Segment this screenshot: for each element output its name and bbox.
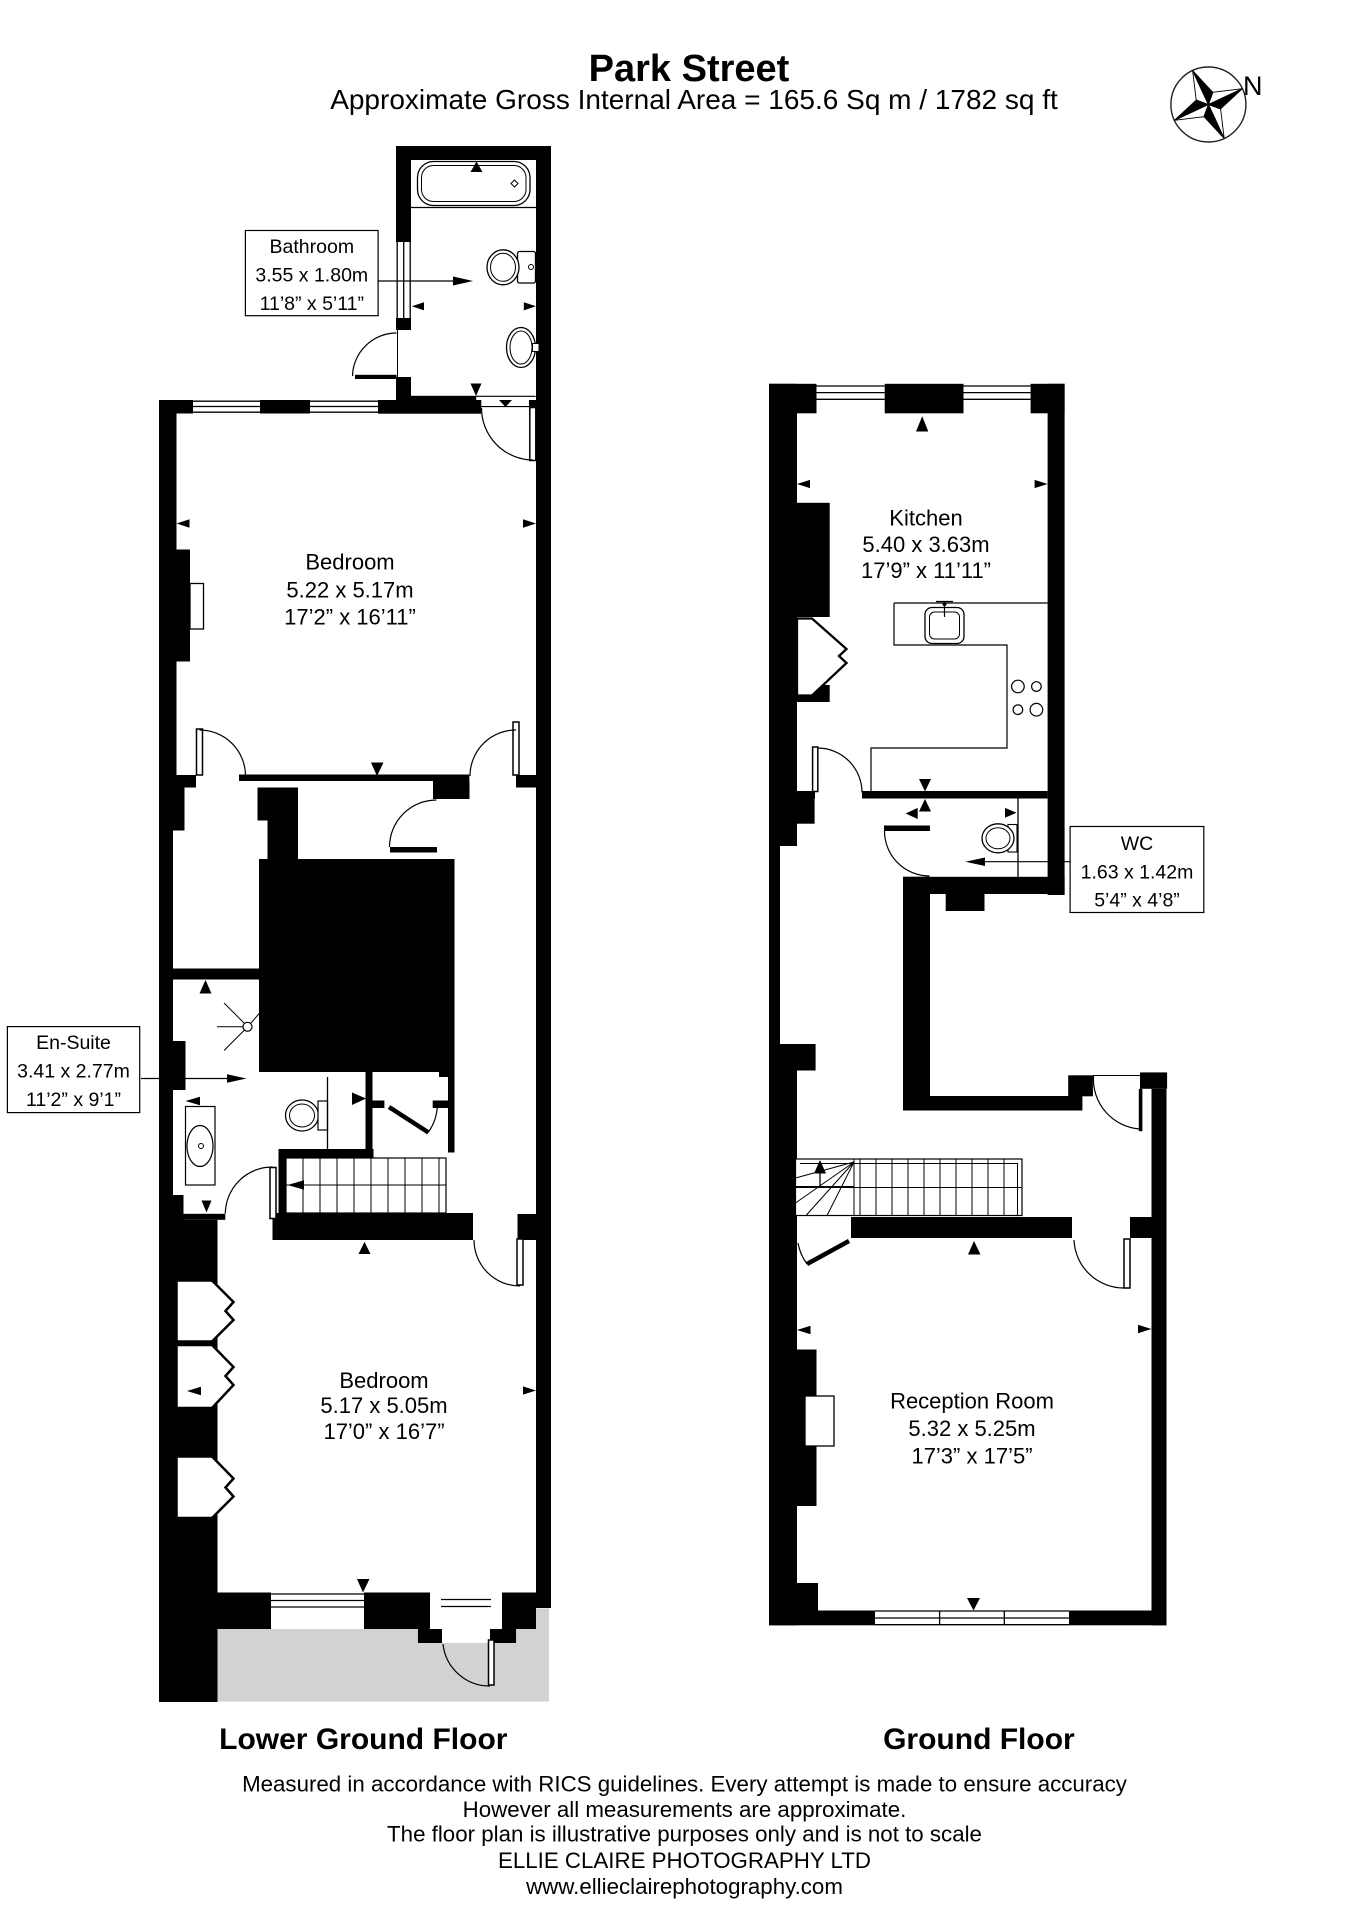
svg-text:1.63 x 1.42m: 1.63 x 1.42m — [1081, 861, 1194, 883]
svg-text:11’2” x 9’1”: 11’2” x 9’1” — [26, 1089, 121, 1111]
svg-text:Kitchen: Kitchen — [889, 506, 962, 531]
svg-text:Lower Ground Floor: Lower Ground Floor — [219, 1723, 508, 1756]
svg-text:5.40 x 3.63m: 5.40 x 3.63m — [862, 532, 989, 557]
svg-text:3.41 x 2.77m: 3.41 x 2.77m — [17, 1061, 130, 1083]
svg-text:17’0” x 16’7”: 17’0” x 16’7” — [323, 1419, 444, 1444]
svg-text:17’2” x 16’11”: 17’2” x 16’11” — [284, 605, 416, 630]
svg-text:ELLIE CLAIRE PHOTOGRAPHY LTD: ELLIE CLAIRE PHOTOGRAPHY LTD — [498, 1848, 871, 1873]
svg-text:Reception Room: Reception Room — [890, 1389, 1054, 1414]
svg-text:Approximate Gross Internal Are: Approximate Gross Internal Area = 165.6 … — [330, 84, 1058, 115]
svg-text:5.17 x 5.05m: 5.17 x 5.05m — [320, 1393, 447, 1418]
svg-text:11’8” x 5’11”: 11’8” x 5’11” — [260, 293, 364, 315]
svg-text:3.55 x 1.80m: 3.55 x 1.80m — [255, 265, 368, 287]
svg-text:Bathroom: Bathroom — [270, 236, 355, 258]
svg-text:17’9” x 11’11”: 17’9” x 11’11” — [861, 558, 991, 583]
svg-text:Measured in accordance with RI: Measured in accordance with RICS guideli… — [242, 1772, 1128, 1797]
svg-text:N: N — [1243, 71, 1263, 101]
svg-text:5.22 x 5.17m: 5.22 x 5.17m — [286, 578, 413, 603]
svg-text:Bedroom: Bedroom — [339, 1368, 428, 1393]
svg-text:Bedroom: Bedroom — [305, 550, 394, 575]
svg-text:www.ellieclairephotography.com: www.ellieclairephotography.com — [525, 1874, 843, 1899]
svg-text:However all measurements are a: However all measurements are approximate… — [463, 1797, 907, 1822]
svg-text:5.32 x 5.25m: 5.32 x 5.25m — [908, 1416, 1035, 1441]
svg-text:The floor plan is illustrative: The floor plan is illustrative purposes … — [387, 1822, 982, 1847]
svg-text:WC: WC — [1121, 833, 1154, 855]
svg-text:17’3” x 17’5”: 17’3” x 17’5” — [911, 1444, 1032, 1469]
svg-text:En-Suite: En-Suite — [36, 1032, 111, 1054]
svg-text:Ground Floor: Ground Floor — [883, 1723, 1075, 1756]
svg-text:5’4” x 4’8”: 5’4” x 4’8” — [1094, 890, 1180, 912]
